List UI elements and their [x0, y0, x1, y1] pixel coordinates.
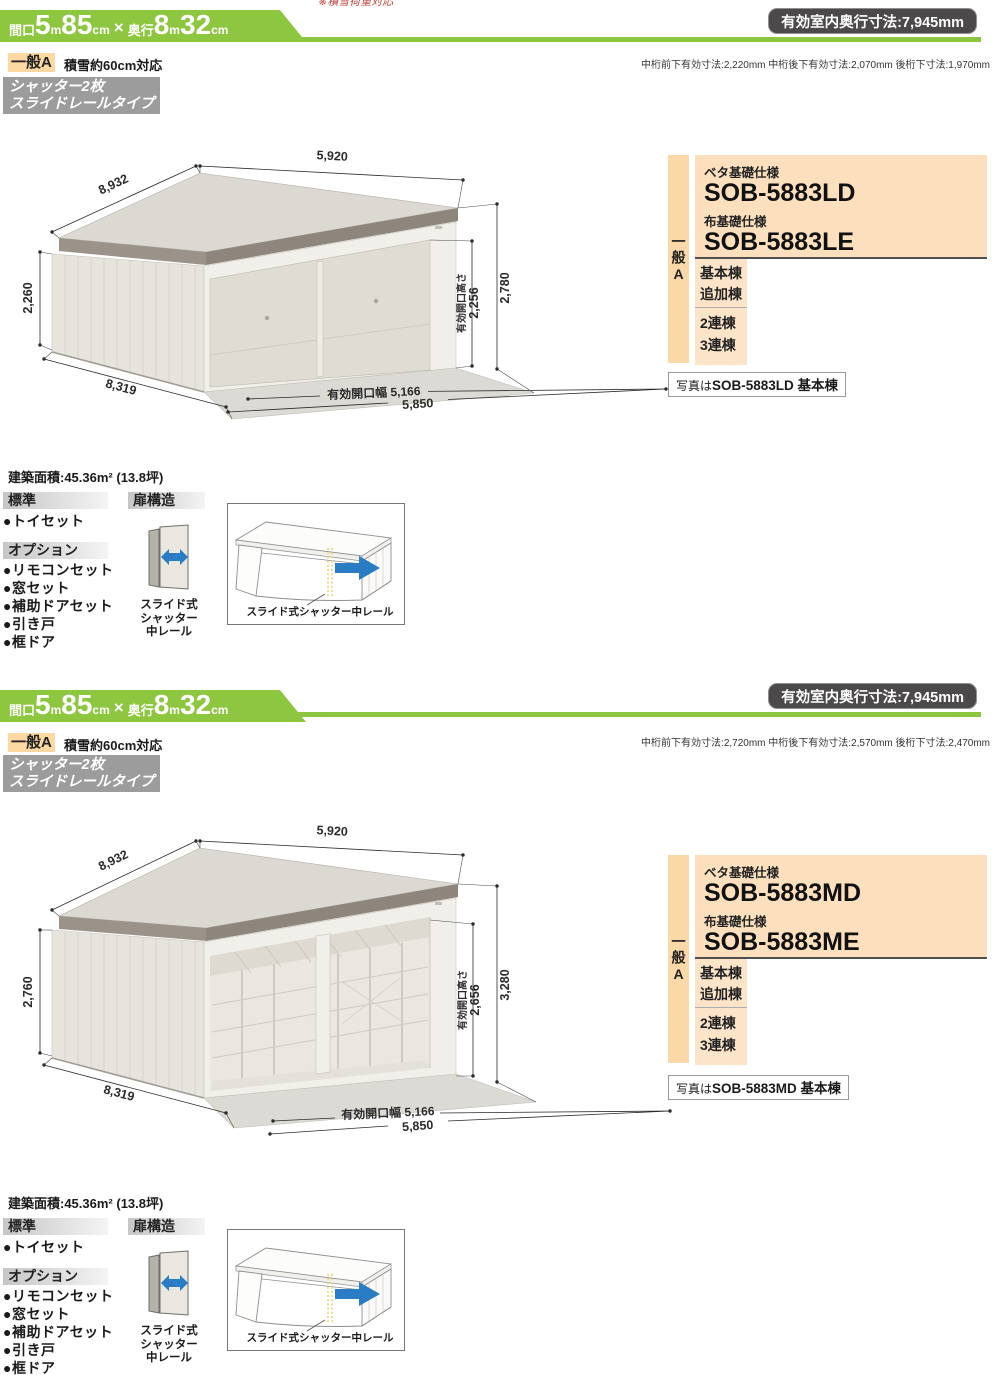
unit-row: 3連棟 — [700, 1035, 736, 1055]
svg-text:5,920: 5,920 — [316, 148, 348, 164]
nuno-foundation-label: 布基礎仕様 — [704, 911, 987, 930]
svg-text:8,932: 8,932 — [96, 847, 130, 873]
options-header: オプション — [3, 1268, 108, 1285]
svg-text:2,256: 2,256 — [467, 287, 481, 318]
nuno-foundation-label: 布基礎仕様 — [704, 211, 987, 230]
mid-rail-diagram: スライド式シャッター中レール — [228, 504, 403, 623]
shutter-type-badge: シャッター2枚 スライドレールタイプ — [3, 755, 160, 792]
photo-caption-box: 写真はSOB-5883MD 基本棟 — [668, 1075, 849, 1100]
depth-label: 奥行 — [128, 700, 154, 719]
snow-load-note: 積雪約60cm対応 — [64, 55, 162, 74]
interior-depth-badge: 有効室内奥行寸法:7,945mm — [768, 8, 977, 34]
product-code-panel: 一般A ベタ基礎仕様 SOB-5883MD 布基礎仕様 SOB-5883ME 基… — [665, 855, 987, 1095]
catalog-page: ※積雪荷重対応 間口5m85cm×奥行8m32cm 有効室内奥行寸法:7,945… — [0, 0, 1000, 1375]
unit-row: 追加棟 — [700, 284, 742, 304]
garage-illustration-open: 5,920 8,932 2,760 8,319 有効開口幅 5,166 5,85… — [20, 820, 675, 1155]
svg-text:スライド式シャッター中レール: スライド式シャッター中レール — [247, 605, 394, 618]
beta-foundation-code: SOB-5883MD — [704, 881, 987, 907]
standard-header: 標準 — [3, 492, 108, 509]
standard-item: ●トイセット — [3, 1237, 84, 1257]
icon-caption: スライド式 シャッター 中レール — [128, 599, 210, 640]
svg-text:8,932: 8,932 — [96, 171, 130, 197]
sliding-shutter-icon — [147, 1249, 191, 1319]
product-code-panel: 一般A ベタ基礎仕様 SOB-5883LD 布基礎仕様 SOB-5883LE 基… — [665, 155, 987, 395]
options-header: オプション — [3, 542, 108, 559]
option-item: ●引き戸 — [3, 614, 55, 634]
svg-text:2,260: 2,260 — [21, 282, 35, 313]
building-area-label: 建築面積:45.36m² (13.8坪) — [8, 467, 163, 486]
width-label: 間口 — [9, 700, 35, 719]
option-item: ●窓セット — [3, 1304, 70, 1324]
icon-caption: スライド式 シャッター 中レール — [128, 1325, 210, 1366]
beam-clearance-note: 中桁前下有効寸法:2,720mm 中桁後下有効寸法:2,570mm 後桁下寸法:… — [641, 734, 990, 749]
size-banner: 間口5m85cm×奥行8m32cm — [0, 10, 306, 42]
shutter-type-badge: シャッター2枚 スライドレールタイプ — [3, 77, 160, 114]
unit-row: 2連棟 — [700, 1013, 736, 1033]
product-section-sob5883ld: 間口5m85cm×奥行8m32cm 有効室内奥行寸法:7,945mm 中桁前下有… — [0, 0, 1000, 675]
category-strip: 一般A — [668, 155, 689, 363]
category-strip: 一般A — [668, 855, 689, 1063]
photo-caption-box: 写真はSOB-5883LD 基本棟 — [668, 372, 846, 397]
unit-row: 追加棟 — [700, 984, 742, 1004]
sliding-shutter-icon — [147, 523, 191, 593]
svg-text:5,850: 5,850 — [402, 1118, 434, 1134]
nuno-foundation-code: SOB-5883LE — [704, 230, 987, 256]
thin-divider — [695, 307, 747, 308]
code-block: ベタ基礎仕様 SOB-5883MD 布基礎仕様 SOB-5883ME — [695, 855, 987, 957]
unit-row: 基本棟 — [700, 263, 742, 283]
option-item: ●引き戸 — [3, 1340, 55, 1360]
beam-clearance-note: 中桁前下有効寸法:2,220mm 中桁後下有効寸法:2,070mm 後桁下寸法:… — [641, 56, 990, 71]
mid-rail-diagram: スライド式シャッター中レール — [228, 1230, 403, 1349]
svg-text:5,850: 5,850 — [402, 396, 434, 412]
standard-header: 標準 — [3, 1218, 108, 1235]
svg-text:3,280: 3,280 — [498, 969, 512, 1000]
option-item: ●窓セット — [3, 578, 70, 598]
svg-text:8,319: 8,319 — [102, 1082, 136, 1104]
standard-item: ●トイセット — [3, 511, 84, 531]
unit-row: 基本棟 — [700, 963, 742, 983]
svg-text:5,920: 5,920 — [316, 823, 348, 839]
thin-divider — [695, 1007, 747, 1008]
snow-load-note: 積雪約60cm対応 — [64, 735, 162, 754]
general-type-badge: 一般A — [8, 53, 55, 72]
spec-group: 建築面積:45.36m² (13.8坪) 標準 ●トイセット オプション ●リモ… — [0, 467, 1000, 675]
unit-row: 2連棟 — [700, 313, 736, 333]
nuno-foundation-code: SOB-5883ME — [704, 930, 987, 956]
garage-illustration-closed: 5,920 8,932 2,260 8,319 有効開口幅 5,166 5,85… — [20, 140, 675, 440]
spec-group: 建築面積:45.36m² (13.8坪) 標準 ●トイセット オプション ●リモ… — [0, 1193, 1000, 1375]
svg-text:スライド式シャッター中レール: スライド式シャッター中レール — [247, 1331, 394, 1344]
times-sign: × — [114, 698, 124, 718]
svg-text:8,319: 8,319 — [104, 376, 138, 398]
option-item: ●框ドア — [3, 632, 55, 652]
width-label: 間口 — [9, 20, 35, 39]
depth-label: 奥行 — [128, 20, 154, 39]
mid-rail-diagram-box: スライド式シャッター中レール — [227, 1229, 405, 1351]
beta-foundation-code: SOB-5883LD — [704, 181, 987, 207]
svg-text:2,780: 2,780 — [498, 272, 512, 303]
door-structure-header: 扉構造 — [128, 492, 205, 509]
code-block: ベタ基礎仕様 SOB-5883LD 布基礎仕様 SOB-5883LE — [695, 155, 987, 257]
option-item: ●補助ドアセット — [3, 596, 113, 616]
option-item: ●リモコンセット — [3, 560, 113, 580]
option-item: ●リモコンセット — [3, 1286, 113, 1306]
unit-row: 3連棟 — [700, 335, 736, 355]
svg-text:2,656: 2,656 — [468, 984, 482, 1015]
option-item: ●框ドア — [3, 1358, 55, 1375]
product-section-sob5883md: 間口5m85cm×奥行8m32cm 有効室内奥行寸法:7,945mm 中桁前下有… — [0, 675, 1000, 1375]
door-structure-header: 扉構造 — [128, 1218, 205, 1235]
times-sign: × — [114, 18, 124, 38]
mid-rail-diagram-box: スライド式シャッター中レール — [227, 503, 405, 625]
general-type-badge: 一般A — [8, 733, 55, 752]
size-banner: 間口5m85cm×奥行8m32cm — [0, 690, 306, 722]
option-item: ●補助ドアセット — [3, 1322, 113, 1342]
building-area-label: 建築面積:45.36m² (13.8坪) — [8, 1193, 163, 1212]
interior-depth-badge: 有効室内奥行寸法:7,945mm — [768, 683, 977, 709]
svg-text:2,760: 2,760 — [21, 976, 35, 1007]
